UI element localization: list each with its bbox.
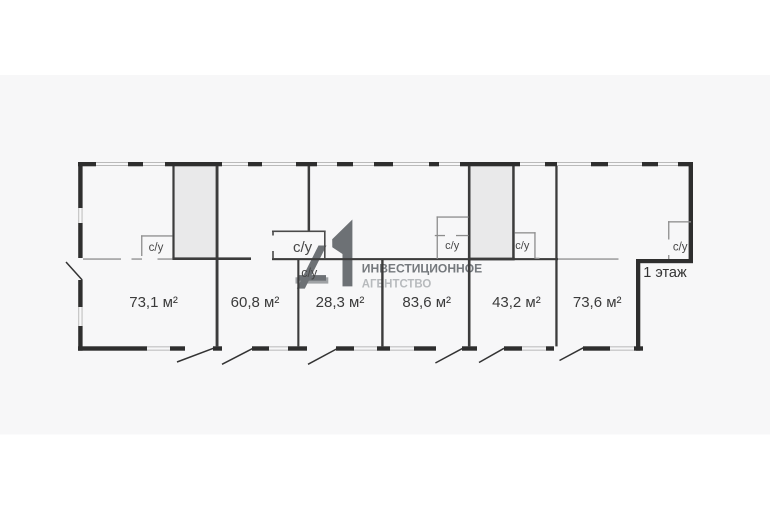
svg-text:с/у: с/у [301, 266, 318, 280]
svg-text:ИНВЕСТИЦИОННОЕ: ИНВЕСТИЦИОННОЕ [362, 261, 482, 275]
svg-text:с/у: с/у [293, 239, 313, 256]
svg-text:1 этаж: 1 этаж [643, 265, 687, 281]
svg-text:60,8 м²: 60,8 м² [231, 294, 280, 311]
svg-text:АГЕНТСТВО: АГЕНТСТВО [362, 277, 432, 291]
svg-text:28,3 м²: 28,3 м² [316, 294, 365, 311]
svg-text:с/у: с/у [149, 242, 164, 254]
svg-text:73,6 м²: 73,6 м² [573, 294, 622, 311]
svg-text:43,2 м²: 43,2 м² [492, 294, 541, 311]
svg-text:83,6 м²: 83,6 м² [402, 294, 451, 311]
svg-text:73,1 м²: 73,1 м² [129, 294, 178, 311]
svg-text:с/у: с/у [673, 241, 688, 253]
svg-text:с/у: с/у [445, 240, 460, 252]
svg-text:с/у: с/у [515, 240, 530, 252]
